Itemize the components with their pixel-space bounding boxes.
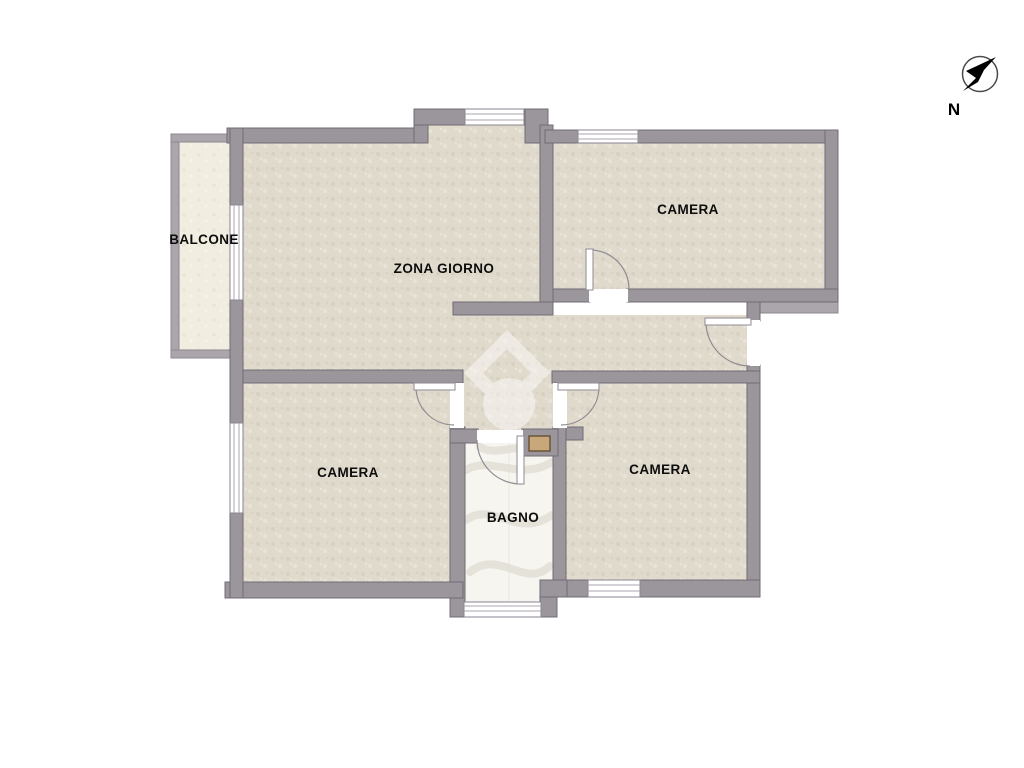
window (465, 109, 524, 125)
wall-segment (414, 109, 466, 125)
shaft-box (529, 436, 550, 451)
wall-segment (540, 597, 557, 617)
entrance-door-opening (747, 320, 760, 366)
room-label-zona-giorno: ZONA GIORNO (394, 261, 495, 276)
wall-segment (552, 371, 760, 383)
wall-segment (227, 128, 415, 143)
wall-segment (760, 302, 838, 313)
room-zona-giorno-bay-floor (428, 123, 525, 145)
room-label-balcone: BALCONE (169, 232, 239, 247)
window (578, 130, 638, 143)
wall-segment (450, 429, 478, 443)
wall-segment (453, 302, 553, 315)
window (464, 602, 541, 617)
wall-segment (747, 383, 760, 597)
wall-segment (627, 289, 838, 302)
room-camera-left-floor (243, 383, 450, 582)
floor-plan-canvas: BALCONE ZONA GIORNO CAMERA CAMERA CAMERA… (0, 0, 1024, 768)
door-leaf (558, 383, 599, 390)
wall-segment (171, 134, 232, 142)
wall-segment (825, 130, 838, 302)
watermark-circle (483, 378, 535, 430)
door-leaf (517, 436, 524, 484)
door-leaf (414, 383, 455, 390)
door-leaf (586, 249, 593, 290)
wall-segment (171, 350, 232, 358)
wall-segment (637, 130, 838, 143)
room-label-camera-left: CAMERA (317, 465, 379, 480)
wall-segment (225, 582, 463, 598)
room-floors (179, 123, 825, 603)
wall-segment (639, 580, 760, 597)
compass: N (948, 57, 998, 120)
window (230, 423, 243, 513)
wall-segment (540, 125, 553, 315)
compass-north-label: N (948, 100, 960, 119)
room-label-bagno: BAGNO (487, 510, 539, 525)
wall-segment (230, 512, 243, 598)
entrance-door-leaf (705, 318, 751, 325)
wall-segment (230, 128, 243, 206)
room-label-camera-right: CAMERA (629, 462, 691, 477)
balcony-door-window (230, 205, 243, 300)
room-label-camera-top: CAMERA (657, 202, 719, 217)
wall-segment (545, 130, 579, 143)
wall-segment (540, 580, 567, 597)
wall-segment (230, 370, 463, 383)
wall-segment (553, 289, 590, 302)
door-opening (589, 289, 628, 302)
wall-segment (230, 299, 243, 424)
window (588, 580, 640, 597)
floor-plan-page: BALCONE ZONA GIORNO CAMERA CAMERA CAMERA… (0, 0, 1024, 768)
room-camera-right-floor (566, 383, 747, 580)
door-opening (477, 430, 523, 443)
